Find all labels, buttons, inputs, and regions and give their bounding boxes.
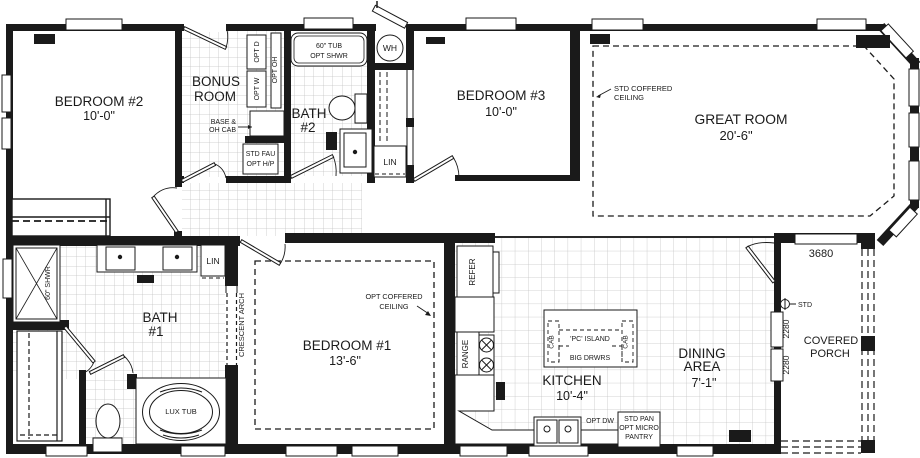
svg-text:CRESCENT ARCH: CRESCENT ARCH [237, 293, 246, 357]
svg-text:PORCH: PORCH [810, 348, 850, 360]
svg-text:10'-4": 10'-4" [556, 389, 588, 403]
svg-text:'PC' ISLAND: 'PC' ISLAND [570, 336, 610, 343]
svg-text:GREAT ROOM: GREAT ROOM [694, 112, 787, 127]
svg-text:BIG DRWRS: BIG DRWRS [570, 355, 611, 362]
svg-text:COVERED: COVERED [804, 335, 858, 347]
svg-text:WH: WH [383, 43, 397, 53]
svg-text:OH CAB: OH CAB [209, 127, 236, 134]
svg-text:OPT D: OPT D [254, 41, 261, 62]
svg-text:3680: 3680 [809, 248, 833, 260]
svg-text:OPT DW: OPT DW [586, 418, 614, 425]
svg-text:STD: STD [798, 302, 812, 309]
svg-text:20'-6": 20'-6" [719, 128, 753, 143]
svg-text:BEDROOM #2: BEDROOM #2 [55, 94, 144, 109]
svg-text:BATH: BATH [142, 310, 177, 325]
svg-text:13'-6": 13'-6" [329, 354, 361, 368]
svg-text:REFER: REFER [468, 258, 477, 285]
svg-text:OPT OH: OPT OH [272, 57, 279, 84]
svg-text:#2: #2 [300, 120, 315, 135]
svg-text:PANTRY: PANTRY [625, 434, 653, 441]
svg-text:AREA: AREA [684, 359, 721, 374]
svg-text:OPT SHWR: OPT SHWR [310, 53, 348, 60]
svg-text:7'-1": 7'-1" [692, 376, 717, 390]
svg-text:KITCHEN: KITCHEN [542, 373, 601, 388]
svg-text:BEDROOM #1: BEDROOM #1 [303, 338, 392, 353]
svg-text:10'-0": 10'-0" [83, 109, 115, 123]
svg-text:10'-0": 10'-0" [485, 105, 517, 119]
svg-text:LUX TUB: LUX TUB [165, 407, 197, 416]
svg-text:OPT H/P: OPT H/P [247, 161, 275, 168]
svg-text:2280: 2280 [781, 355, 791, 374]
svg-text:STD FAU: STD FAU [246, 151, 276, 158]
svg-text:LIN: LIN [383, 157, 396, 167]
svg-text:BATH: BATH [291, 106, 326, 121]
svg-text:ROOM: ROOM [194, 89, 236, 104]
svg-text:2280: 2280 [781, 319, 791, 338]
svg-text:60" SHWR: 60" SHWR [45, 266, 52, 300]
svg-text:BASE &: BASE & [211, 119, 237, 126]
svg-text:60" TUB: 60" TUB [316, 43, 342, 50]
svg-text:OPT W: OPT W [254, 77, 261, 100]
svg-text:STD COFFERED: STD COFFERED [614, 84, 673, 93]
svg-text:LIN: LIN [206, 256, 219, 266]
svg-text:OPT MICRO: OPT MICRO [619, 425, 659, 432]
svg-text:CAB: CAB [623, 335, 630, 348]
svg-text:STD PAN: STD PAN [624, 416, 654, 423]
svg-text:CAB: CAB [549, 335, 556, 348]
svg-text:CEILING: CEILING [379, 302, 409, 311]
svg-text:#1: #1 [148, 324, 163, 339]
svg-text:RANGE: RANGE [461, 340, 470, 368]
svg-text:CEILING: CEILING [614, 93, 644, 102]
svg-text:OPT COFFERED: OPT COFFERED [365, 292, 422, 301]
svg-text:BEDROOM #3: BEDROOM #3 [457, 88, 546, 103]
svg-text:BONUS: BONUS [192, 74, 240, 89]
